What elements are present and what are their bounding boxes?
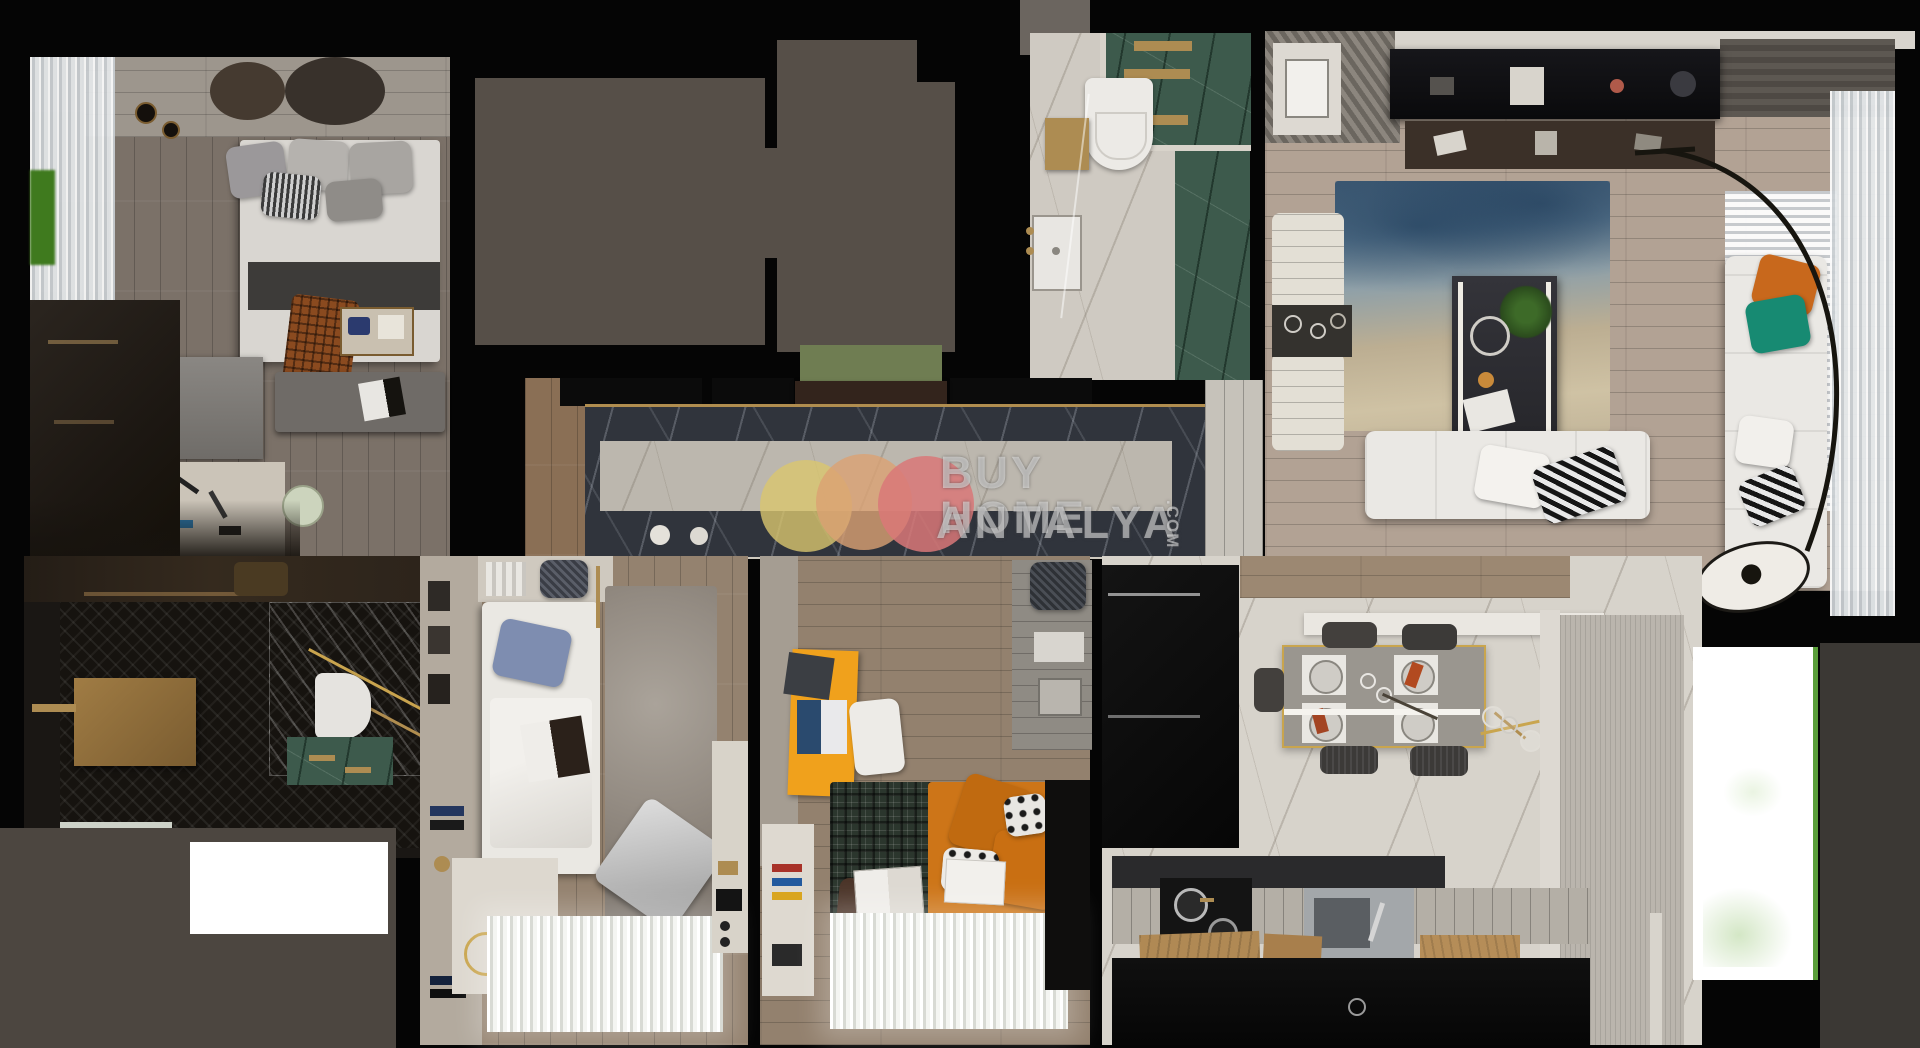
sink-faucet [1368, 902, 1385, 942]
shelf-white-rolls [486, 562, 526, 596]
kitchen-black-cabinets [1102, 565, 1239, 848]
placemat [1302, 655, 1346, 695]
ceiling-cutout [210, 62, 285, 120]
kid2-magazine [944, 858, 1006, 905]
living-media-wall [1390, 49, 1720, 119]
wardrobe-frame [1038, 678, 1082, 716]
bench-book [358, 377, 406, 422]
shelf-books [430, 806, 464, 816]
kid1-overbed-shelf [478, 556, 613, 602]
pendant-lamp [135, 102, 157, 124]
tray-decor [348, 317, 370, 335]
shelf-knob [720, 937, 730, 947]
kid1-window-curtains [487, 916, 723, 1032]
chandelier-globe [1500, 716, 1518, 734]
dining-chair [1322, 622, 1377, 648]
shelf-black-box [716, 889, 742, 911]
island-appliance-black [560, 378, 702, 406]
outside-area-right [1820, 643, 1920, 1048]
watermark: BUY HOME ANTALYA .COM [760, 448, 1200, 563]
outside-area-left [0, 828, 396, 1048]
vanity-green-counter [287, 737, 393, 785]
room-kitchen-dining [1102, 556, 1702, 1045]
vanity-gold-tap [309, 755, 335, 761]
kid2-white-pillow [848, 698, 905, 777]
shower-gold-shelf [1134, 41, 1192, 51]
book-spine [772, 864, 802, 872]
wine-glass [1360, 673, 1376, 689]
media-decor [1510, 67, 1544, 105]
wall-frame [428, 626, 450, 654]
toilet [1085, 78, 1153, 170]
kitchen-base-black [1112, 958, 1590, 1045]
roof-notch [917, 40, 955, 82]
wardrobe-dark-pillow [1030, 562, 1086, 610]
living-side-table-dark [1272, 305, 1352, 357]
living-armchair [1272, 353, 1344, 451]
arc-floor-lamp [1595, 121, 1895, 601]
kid1-open-book [520, 716, 590, 783]
island-appliance-black [950, 378, 1092, 406]
drawer-knob [1348, 998, 1366, 1016]
kid2-bookshelf [762, 824, 814, 996]
glassware [1330, 313, 1346, 329]
pendant-lamp [162, 121, 180, 139]
table-magazine [1463, 389, 1516, 433]
room-bathroom-ensuite [1030, 33, 1250, 380]
bed-bench [275, 372, 445, 432]
ceiling-cutout [285, 57, 385, 125]
gold-towel-bar [32, 704, 76, 712]
bed-tray [340, 307, 414, 356]
kitchen-entry-wood [1240, 556, 1570, 598]
book-spine [772, 892, 802, 900]
glassware [1284, 315, 1302, 333]
balcony-bright-window [1693, 647, 1813, 980]
toilet-seat-line [1095, 112, 1147, 160]
book-spine [772, 878, 802, 886]
dining-chair [1410, 746, 1468, 776]
kid2-laptop [797, 700, 847, 754]
tray-decor [378, 315, 404, 339]
dining-table [1282, 645, 1486, 748]
chandelier-sputnik [1480, 704, 1542, 752]
bedroom-closet-shadow [30, 500, 300, 562]
art-print [1285, 59, 1329, 118]
cabinet-light-seam [1108, 593, 1200, 596]
island-sink-round [690, 527, 708, 545]
shelf-knob [720, 921, 730, 931]
shelf-decor-gold [434, 856, 450, 872]
glassware [1310, 323, 1326, 339]
island-right-cabinet [1205, 380, 1263, 558]
cabinet-light-seam [1108, 715, 1200, 718]
kitchen-white-sliver [1650, 913, 1662, 1045]
kid1-right-shelf [712, 741, 748, 953]
balcony-foliage-hint [1723, 767, 1783, 817]
wardrobe-shelf-light [48, 340, 118, 344]
balcony-green-edge [1813, 647, 1818, 980]
pot-silver [1174, 888, 1208, 922]
wardrobe-shelf-light [54, 420, 114, 424]
gold-towel-panel [74, 678, 196, 766]
kid1-bed [482, 602, 600, 874]
media-decor [1610, 79, 1624, 93]
kid1-blue-pillow [491, 617, 573, 689]
lamp-dish-center [1739, 562, 1763, 586]
table-decor-silver [1470, 316, 1510, 356]
watermark-suffix: .COM [1164, 500, 1181, 548]
sink-faucet-brass [1026, 247, 1034, 255]
room-kid-bedroom-2 [760, 556, 1090, 1045]
pot-gold-handle [1200, 898, 1214, 902]
sink-drain [1052, 247, 1060, 255]
dining-chair [1320, 746, 1378, 774]
shelf-decor [1433, 130, 1467, 156]
wall-frame [428, 581, 450, 611]
blank-white-block [190, 842, 388, 934]
placemat [1394, 655, 1438, 695]
table-cup [1478, 372, 1494, 388]
window-plant [30, 170, 55, 265]
hanging-jacket [234, 562, 288, 596]
dining-chair [1254, 668, 1284, 712]
room-living [1265, 31, 1895, 616]
bed-pillow [324, 178, 383, 223]
toilet [315, 673, 371, 739]
bed [240, 140, 440, 362]
room-kid-bedroom-1 [420, 556, 748, 1045]
kid1-gold-lamp [596, 566, 600, 628]
wardrobe-white-stack [1034, 632, 1084, 662]
living-armchair [1272, 213, 1344, 311]
island-appliance-black [712, 378, 794, 406]
shelf-gold-item [718, 861, 738, 875]
media-decor [1670, 71, 1696, 97]
floral-bw-pillow [1002, 792, 1049, 837]
balcony-foliage-hint [1703, 887, 1793, 967]
bathroom-sink [1032, 215, 1082, 291]
kid2-window-curtains [830, 913, 1068, 1029]
roof-block [475, 78, 765, 345]
kid2-monitor [783, 652, 834, 700]
wall-frame [428, 674, 450, 704]
laptop-screen [797, 700, 821, 754]
chandelier-globe [1520, 730, 1542, 752]
book-spine [772, 944, 802, 966]
sink-faucet-brass [1026, 227, 1034, 235]
bed-pillow-patterned [260, 171, 322, 221]
shelf-books [430, 820, 464, 830]
island-sink-round [650, 525, 670, 545]
kid2-wardrobe [1012, 560, 1092, 750]
range-hood-glass [800, 345, 942, 381]
kid2-dark-corner [1045, 780, 1090, 990]
vanity-gold-tap [345, 767, 371, 773]
table-led-strip [1284, 709, 1480, 715]
media-decor [1430, 77, 1454, 95]
shelf-dark-pillow [540, 560, 588, 598]
room-master-bedroom [30, 57, 450, 562]
living-art-shelf [1273, 43, 1341, 135]
sink-basin [1314, 898, 1370, 948]
dining-chair [1402, 624, 1457, 650]
watermark-line2: ANTALYA [936, 500, 1181, 545]
shelf-decor [1535, 131, 1557, 155]
roof-block [777, 40, 955, 352]
apartment-floorplan-render: BUY HOME ANTALYA .COM [0, 0, 1920, 1048]
plate [1309, 660, 1343, 694]
